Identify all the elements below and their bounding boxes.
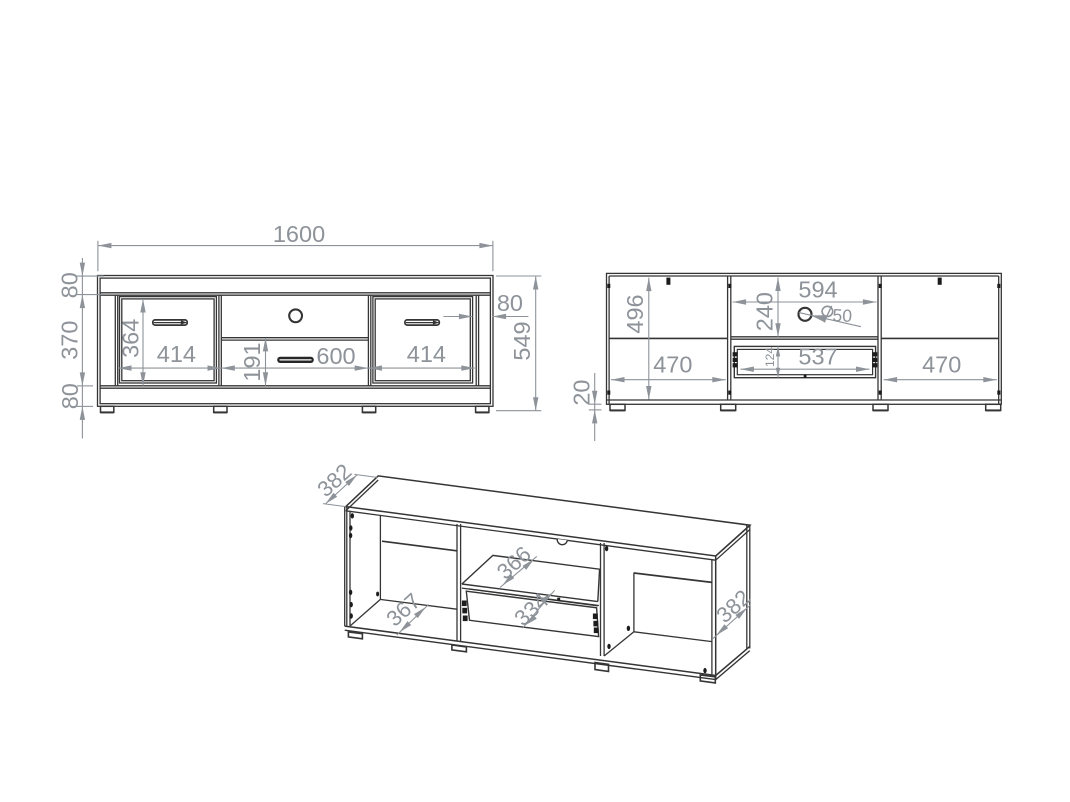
svg-text:191: 191 — [239, 342, 265, 381]
svg-text:414: 414 — [407, 341, 446, 367]
svg-text:600: 600 — [316, 343, 355, 369]
svg-text:537: 537 — [798, 344, 837, 370]
svg-text:549: 549 — [509, 321, 535, 360]
svg-text:364: 364 — [117, 319, 143, 358]
svg-text:414: 414 — [157, 341, 196, 367]
svg-text:496: 496 — [622, 294, 648, 333]
svg-text:470: 470 — [922, 352, 961, 378]
svg-text:50: 50 — [832, 305, 853, 326]
svg-text:470: 470 — [653, 352, 692, 378]
svg-text:124: 124 — [763, 347, 777, 367]
svg-text:1600: 1600 — [273, 221, 325, 247]
svg-text:594: 594 — [798, 277, 837, 303]
svg-text:240: 240 — [752, 292, 778, 331]
svg-text:20: 20 — [569, 380, 595, 406]
svg-text:80: 80 — [56, 272, 82, 298]
svg-text:80: 80 — [57, 383, 83, 409]
svg-text:370: 370 — [57, 321, 83, 360]
svg-text:80: 80 — [497, 290, 523, 316]
